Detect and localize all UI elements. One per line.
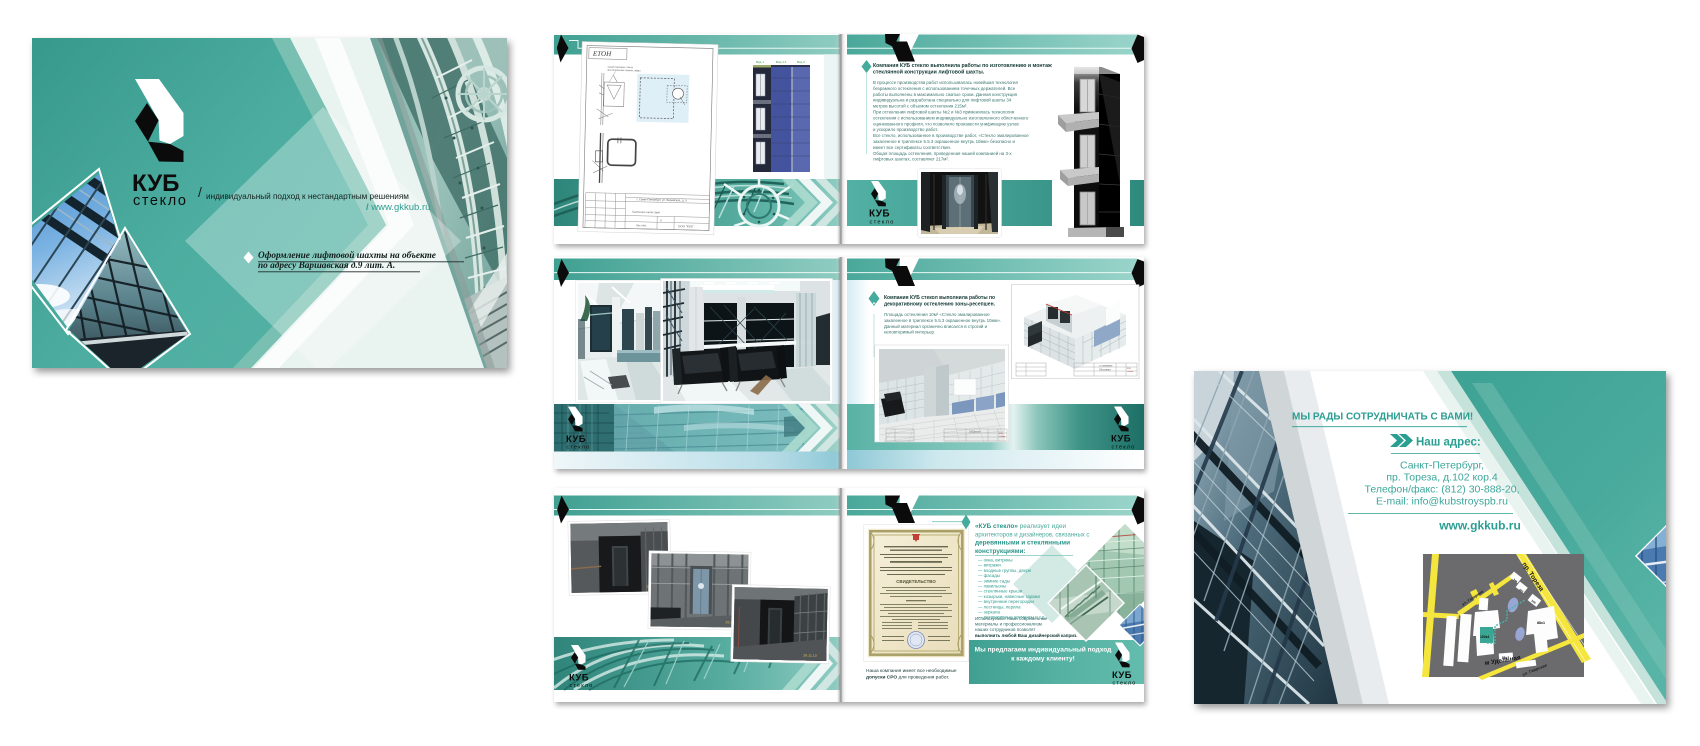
svg-text:СВИДЕТЕЛЬСТВО: СВИДЕТЕЛЬСТВО [896, 579, 936, 584]
svg-text:стекло: стекло [1113, 681, 1137, 687]
svg-text:Лист №1: Лист №1 [636, 223, 647, 227]
svg-text:стеклянной конструкции лифтово: стеклянной конструкции лифтовой шахты. [873, 69, 985, 76]
svg-text:индивидуальна и разработана сп: индивидуальна и разработана специально д… [873, 98, 1012, 103]
svg-text:Площадь остекления 10м² «Стекл: Площадь остекления 10м² «Стекло эмалиров… [884, 312, 990, 317]
svg-text:1600ресеп: 1600ресеп [969, 431, 982, 434]
svg-text:ЕТОН: ЕТОН [592, 50, 612, 58]
svg-text:стекло: стекло [999, 436, 1006, 438]
svg-text:88х3: 88х3 [1502, 656, 1509, 660]
svg-text:имеет все сертификаты соответс: имеет все сертификаты соответствия. [873, 145, 951, 150]
svg-text:неповторимый интерьер.: неповторимый интерьер. [884, 330, 935, 335]
svg-text:www.gkkub.ru: www.gkkub.ru [1438, 519, 1521, 533]
svg-text:Санкт-Петербург,: Санкт-Петербург, [1400, 460, 1484, 472]
svg-text:наших сотрудников позволят: наших сотрудников позволят [975, 627, 1036, 632]
svg-text:КУБ: КУБ [1111, 434, 1131, 445]
svg-text:При остеклении лифтовой шахты: При остеклении лифтовой шахты №2 и №3 пр… [873, 110, 1015, 115]
svg-text:Наша компания имеет все необхо: Наша компания имеет все необходимые [866, 668, 957, 674]
svg-text:Общая площадь остекления, пров: Общая площадь остекления, проведенная на… [873, 151, 1012, 156]
svg-text:выполнить любой Ваш дизайнерск: выполнить любой Ваш дизайнерский каприз. [975, 632, 1078, 638]
svg-text:стекло: стекло [870, 220, 895, 226]
svg-text:КУБ: КУБ [1112, 670, 1132, 681]
svg-text:декоративному остеклению зоны-: декоративному остеклению зоны-ресепшен. [884, 302, 996, 308]
svg-text:деревянными и стеклянными: деревянными и стеклянными [975, 540, 1070, 547]
svg-text:88х1: 88х1 [1537, 621, 1545, 625]
svg-text:стекло: стекло [1112, 445, 1136, 451]
svg-text:Компания КУБ стекол выполнила: Компания КУБ стекол выполнила работы по [884, 294, 995, 301]
svg-text:Объемная: Объемная [1099, 369, 1111, 372]
svg-text:В процессе производства работ: В процессе производства работ использова… [873, 80, 1018, 85]
svg-text:МЫ РАДЫ СОТРУДНИЧАТЬ С ВАМИ!: МЫ РАДЫ СОТРУДНИЧАТЬ С ВАМИ! [1292, 412, 1473, 423]
svg-text:лифтовых шахтах, составляет 21: лифтовых шахтах, составляет 217м². [873, 157, 949, 162]
svg-text:Телефон/факс: (812) 30-888-20: Телефон/факс: (812) 30-888-20, [1365, 484, 1520, 496]
svg-text:Данный материал органично впис: Данный материал органично вписался в стр… [884, 324, 988, 329]
svg-text:КУБ: КУБ [566, 434, 586, 445]
svg-text:Наш адрес:: Наш адрес: [1416, 437, 1481, 449]
svg-text:Вид 1: Вид 1 [756, 60, 764, 64]
svg-text:Все стекло, использованное в п: Все стекло, использованное в производств… [873, 133, 1029, 138]
svg-text:допуски СРО для проведения раб: допуски СРО для проведения работ. [866, 675, 949, 681]
svg-text:оцинкованного профиля, что поз: оцинкованного профиля, что позволило про… [873, 121, 1019, 126]
svg-text:E-mail: info@kubstroyspb.ru: E-mail: info@kubstroyspb.ru [1376, 496, 1508, 508]
svg-text:стекло: стекло [1127, 371, 1134, 373]
svg-text:Вид 2: Вид 2 [797, 60, 805, 64]
svg-text:Компания КУБ стекло выполнила: Компания КУБ стекло выполнила работы по … [873, 62, 1055, 69]
svg-text:метров высотой с объемом остек: метров высотой с объемом остекления 215м… [873, 104, 968, 109]
svg-text:стекло: стекло [567, 445, 591, 451]
svg-text:закаленное в триплексе 5.5.3 о: закаленное в триплексе 5.5.3 окрашенное … [884, 318, 1001, 323]
svg-text:стекло: стекло [570, 683, 594, 689]
svg-text:ООО "КУБ": ООО "КУБ" [678, 224, 694, 228]
svg-text:«КУБ стекло» реализует идеи: «КУБ стекло» реализует идеи [975, 523, 1067, 530]
svg-text:закаленное в триплексе 5.5.3 о: закаленное в триплексе 5.5.3 окрашенное … [873, 139, 1015, 144]
svg-text:КУБ: КУБ [869, 209, 890, 220]
svg-text:к каждому клиенту!: к каждому клиенту! [1011, 656, 1075, 663]
svg-text:102к4: 102к4 [1480, 635, 1489, 639]
svg-text:о. компания: о. компания [1099, 365, 1113, 368]
svg-text:28.11.10: 28.11.10 [803, 654, 816, 658]
svg-text:КУБ: КУБ [569, 673, 589, 684]
svg-text:материалы и профессионализм: материалы и профессионализм [975, 622, 1042, 627]
svg-text:остекления с использованием ин: остекления с использованием индивидуальн… [873, 115, 1029, 120]
svg-text:Мы предлагаем индивидуальный п: Мы предлагаем индивидуальный подход [975, 646, 1113, 654]
svg-text:безрамного остекления с исполь: безрамного остекления с использованием т… [873, 86, 1016, 91]
svg-text:и ускорило производство работ.: и ускорило производство работ. [873, 127, 938, 132]
svg-text:Вид 1-1: Вид 1-1 [776, 60, 787, 64]
svg-text:пр. Тореза, д.102 кор.4: пр. Тореза, д.102 кор.4 [1386, 472, 1498, 484]
svg-text:работы выполнены в максимально: работы выполнены в максимально сжатые ср… [873, 92, 1018, 97]
svg-text:архитекторов и дизайнеров, св: архитекторов и дизайнеров, связанных с [975, 531, 1089, 538]
svg-text:конструкциями:: конструкциями: [975, 548, 1026, 555]
svg-text:Балконные щели сдвиг: Балконные щели сдвиг [632, 210, 660, 215]
svg-text:Используемые нами современные: Используемые нами современные [975, 616, 1048, 621]
